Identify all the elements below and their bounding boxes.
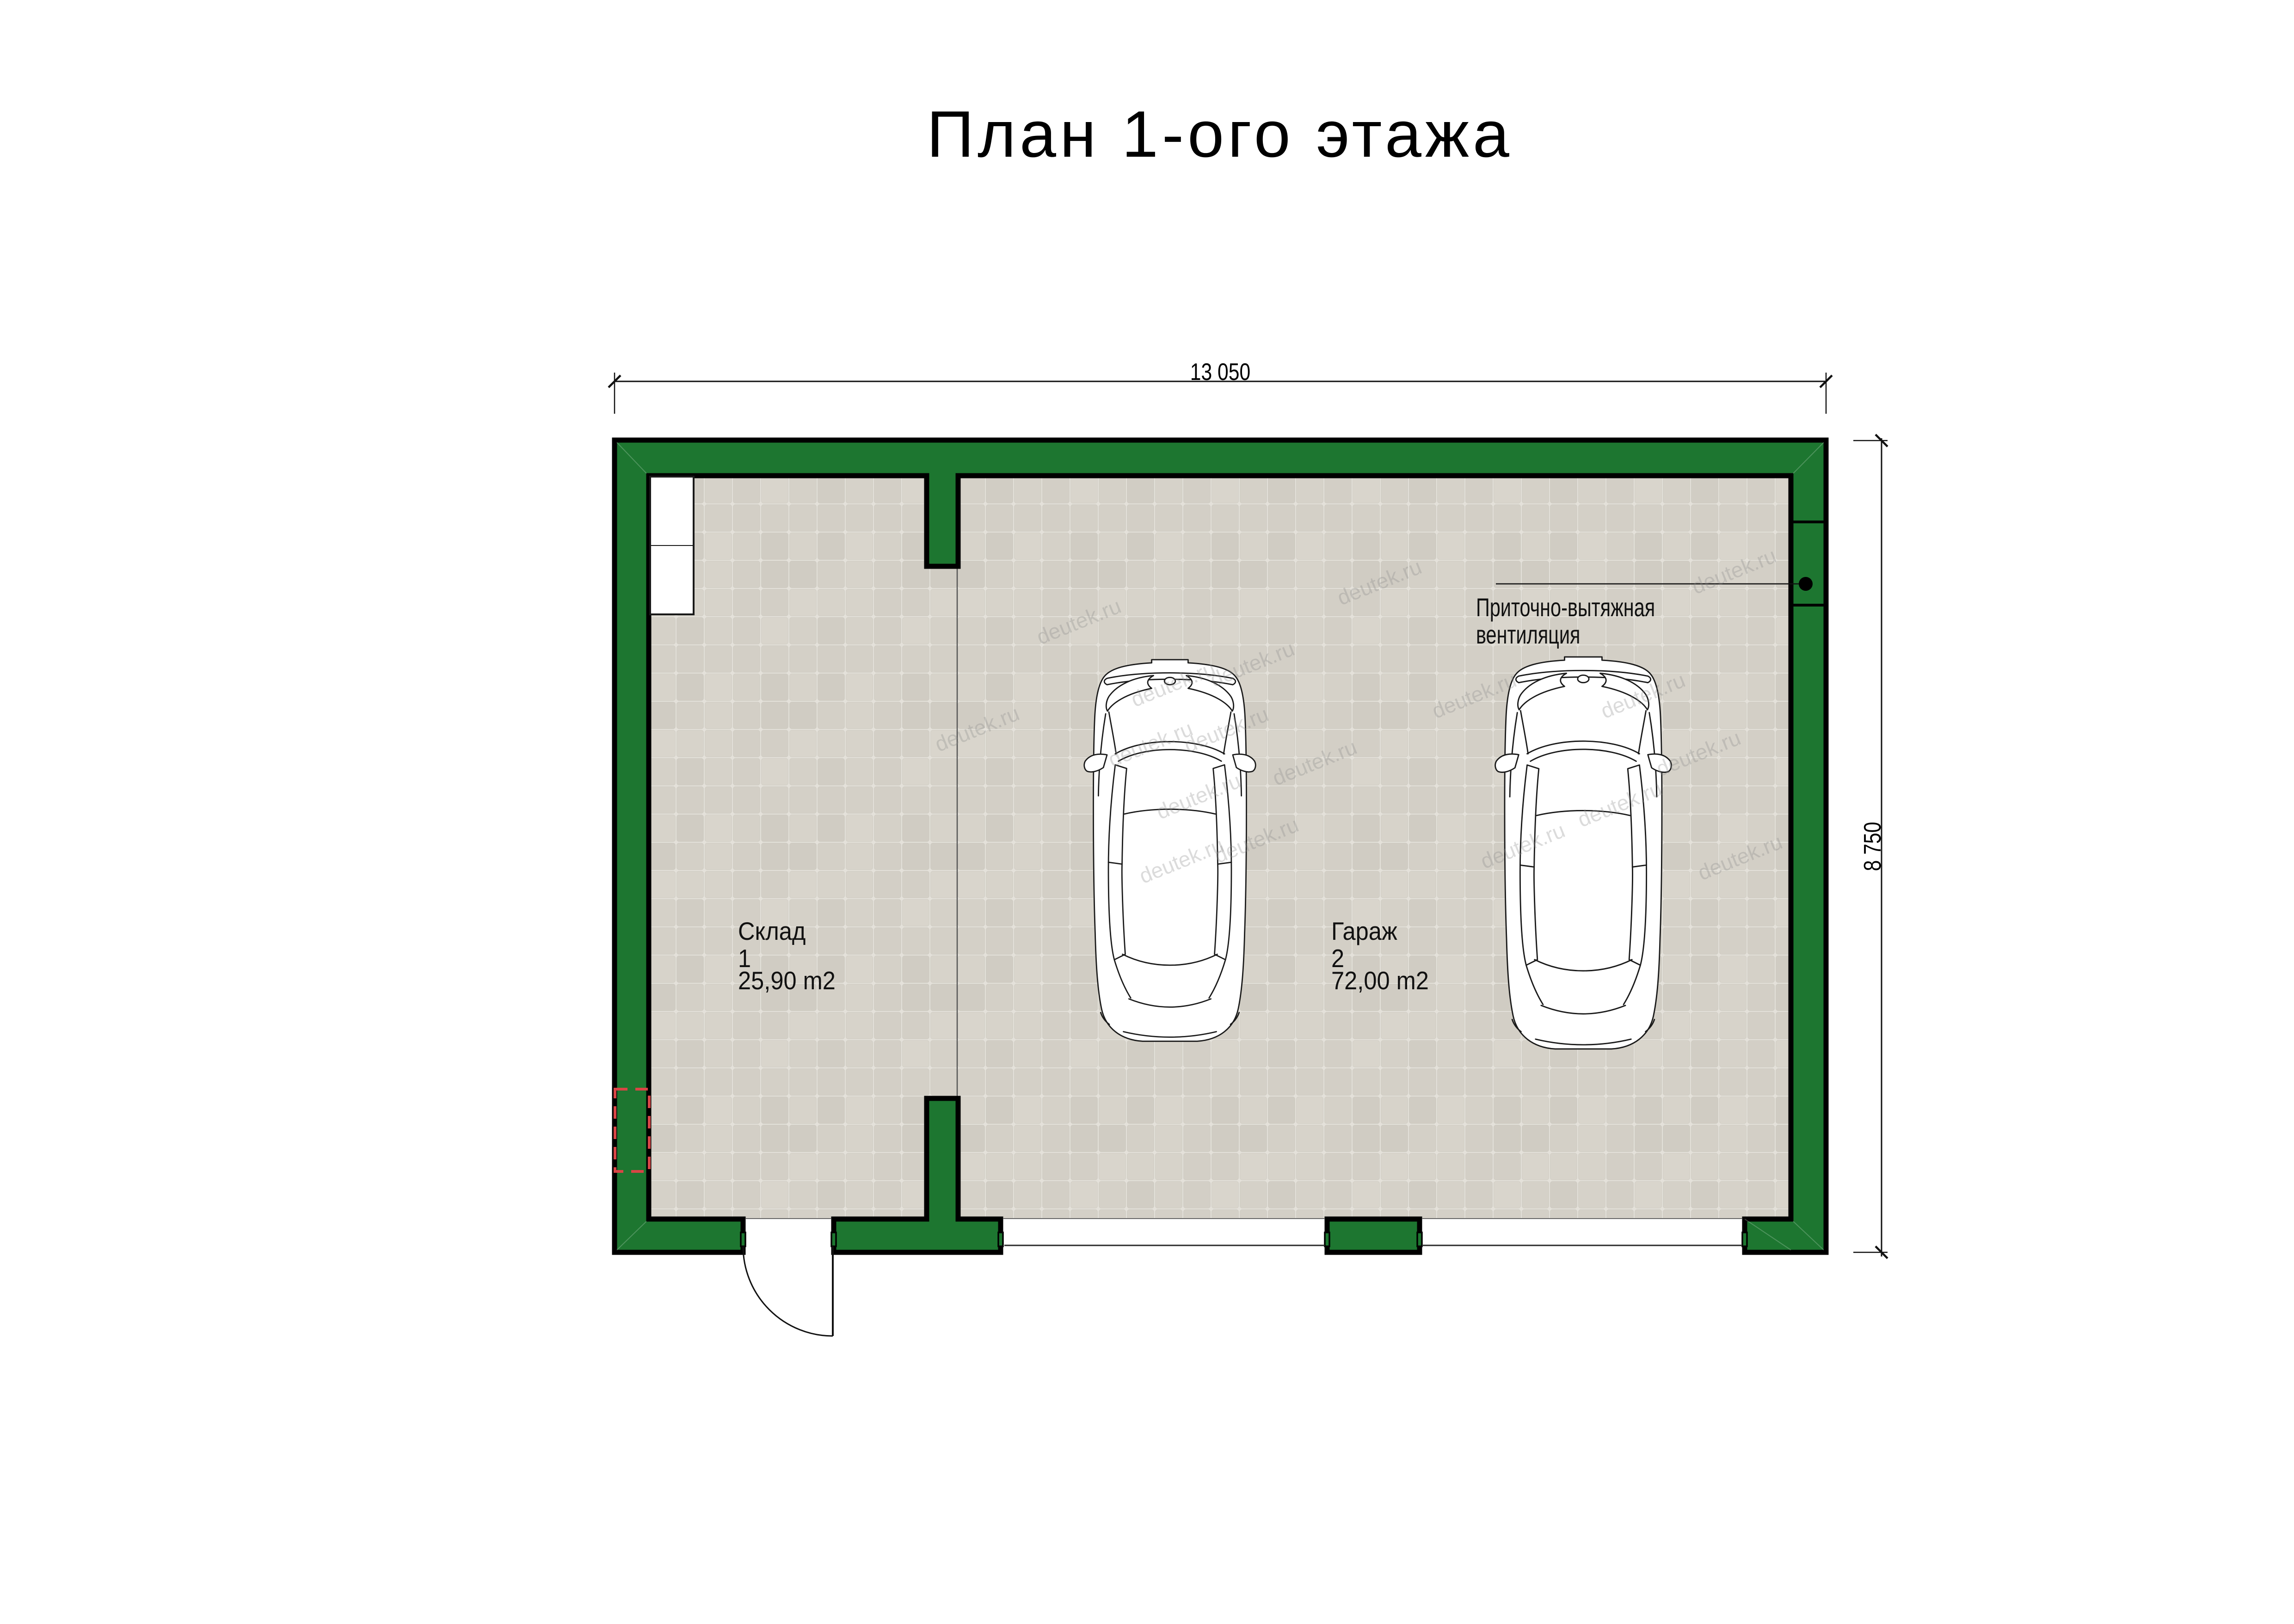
svg-text:8 750: 8 750	[1859, 822, 1886, 871]
svg-text:вентиляция: вентиляция	[1476, 620, 1581, 650]
svg-text:25,90 m2: 25,90 m2	[738, 967, 836, 995]
svg-text:Приточно-вытяжная: Приточно-вытяжная	[1476, 593, 1655, 622]
svg-text:72,00 m2: 72,00 m2	[1331, 967, 1429, 995]
svg-text:Гараж: Гараж	[1331, 917, 1397, 945]
svg-text:Склад: Склад	[738, 917, 806, 945]
svg-text:План 1-ого этажа: План 1-ого этажа	[927, 98, 1513, 171]
svg-text:13 050: 13 050	[1190, 359, 1250, 386]
